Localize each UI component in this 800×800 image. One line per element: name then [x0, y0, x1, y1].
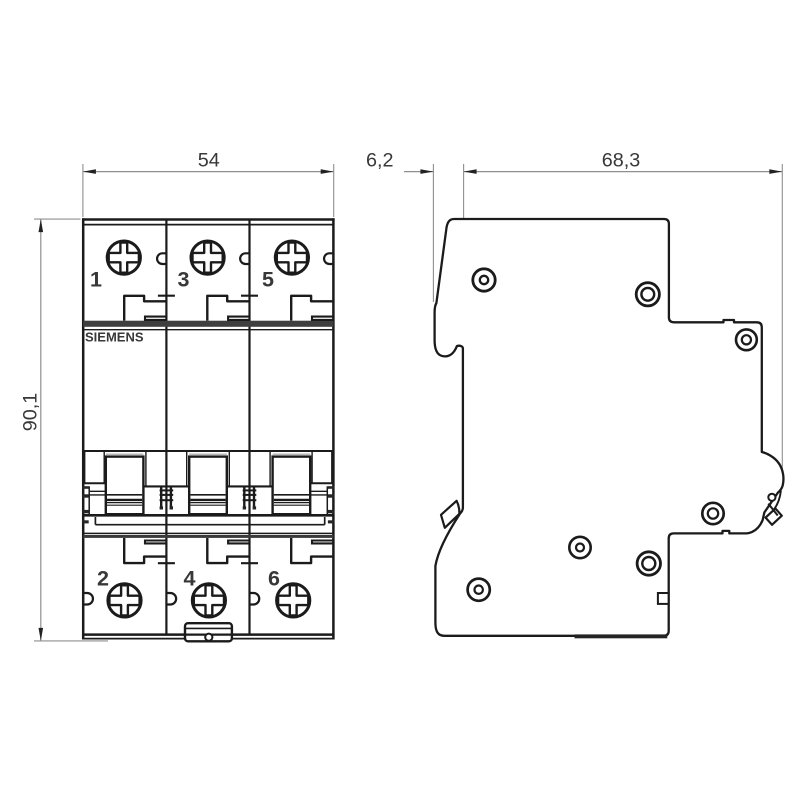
svg-text:68,3: 68,3: [602, 149, 641, 171]
svg-text:4: 4: [184, 567, 196, 591]
svg-text:54: 54: [198, 149, 220, 171]
svg-text:1: 1: [90, 268, 102, 292]
svg-text:SIEMENS: SIEMENS: [85, 329, 144, 344]
svg-text:90,1: 90,1: [20, 393, 42, 432]
svg-text:3: 3: [178, 268, 190, 292]
svg-text:5: 5: [262, 268, 274, 292]
svg-text:6,2: 6,2: [366, 149, 394, 171]
svg-text:6: 6: [268, 567, 280, 591]
svg-text:2: 2: [97, 567, 109, 591]
